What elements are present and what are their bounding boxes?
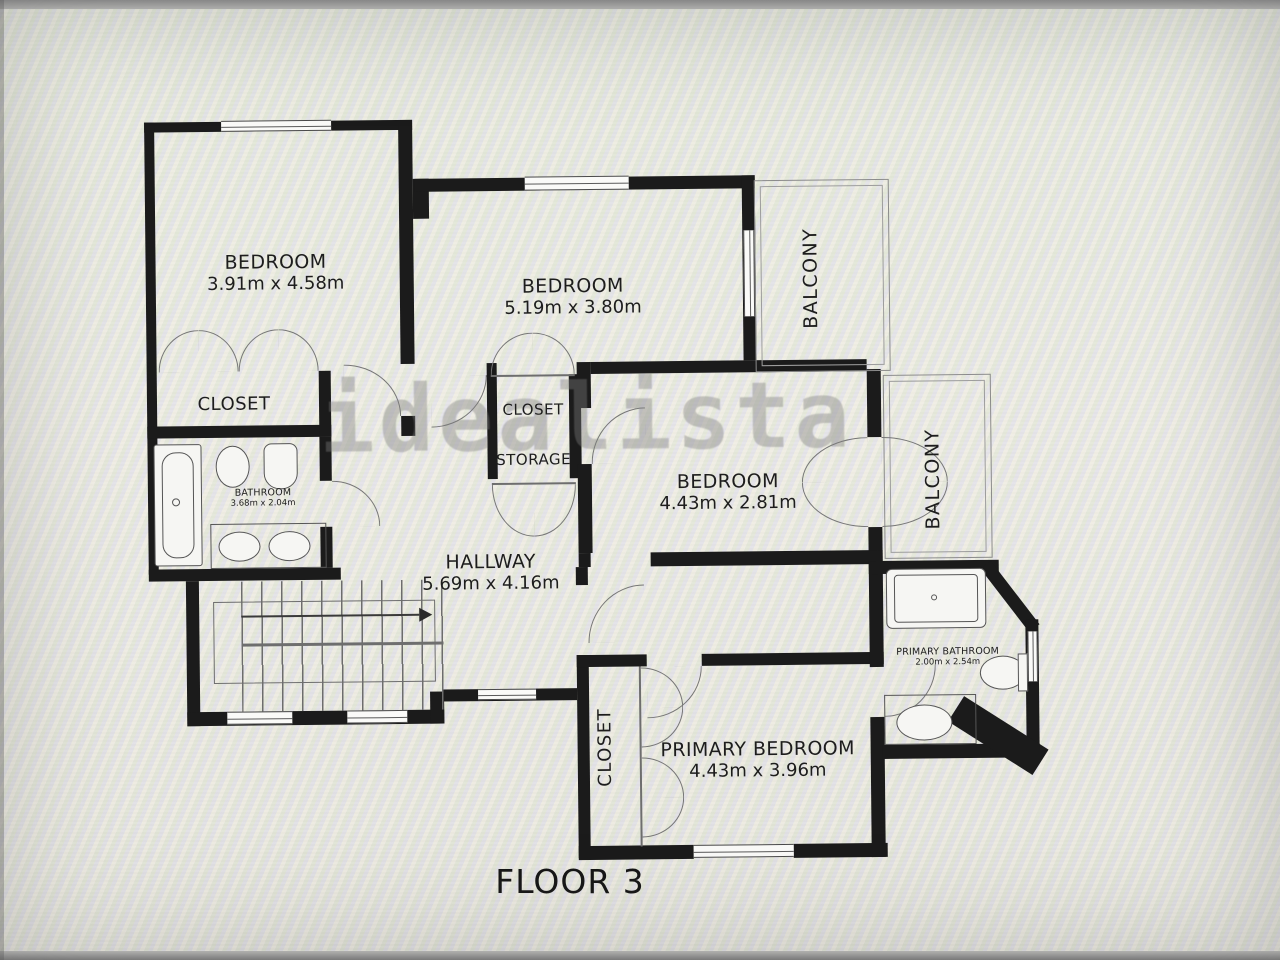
wall [398, 120, 415, 364]
door-arc [492, 485, 535, 537]
room-dims: 3.68m x 2.04m [231, 498, 296, 509]
room-dims: 2.00m x 2.54m [896, 657, 999, 668]
window [743, 230, 755, 316]
toilet-tank-icon [1018, 653, 1028, 691]
room-label-bathroom: BATHROOM 3.68m x 2.04m [230, 487, 295, 509]
room-label-bedroom-1: BEDROOM 3.91m x 4.58m [207, 251, 345, 295]
bifold-door-arc [158, 330, 198, 372]
wall [319, 437, 331, 481]
room-name: BATHROOM [230, 487, 295, 499]
french-door-arc [801, 437, 867, 483]
bifold-door-arc [532, 332, 574, 374]
window [221, 120, 331, 132]
wall [186, 581, 201, 726]
wall [577, 362, 591, 408]
closet-label: CLOSET [502, 400, 563, 419]
room-name: BEDROOM [207, 251, 345, 274]
window [347, 710, 407, 724]
screen-top-bar [0, 0, 1280, 9]
floor-plan: idealista BEDROOM 3.91m x 4.58m BEDROOM … [136, 107, 1044, 884]
balcony-label: BALCONY [799, 228, 822, 329]
room-dims: 3.91m x 4.58m [207, 273, 345, 295]
wall [401, 416, 415, 436]
door-arc [332, 480, 380, 527]
wall [579, 553, 591, 567]
door-arc [588, 584, 645, 643]
bifold-door-arc [278, 329, 318, 371]
balcony-label: BALCONY [921, 428, 944, 529]
wall [579, 845, 694, 860]
stair-direction-arrow [419, 608, 432, 622]
drain-icon [172, 498, 180, 506]
bifold-door-arc [642, 797, 684, 837]
room-name: HALLWAY [422, 550, 560, 573]
room-name: PRIMARY BEDROOM [660, 737, 855, 761]
room-label-hallway: HALLWAY 5.69m x 4.16m [422, 550, 560, 594]
wall [869, 564, 884, 667]
wall [702, 652, 884, 666]
room-label-bedroom-3: BEDROOM 4.43m x 2.81m [659, 470, 797, 514]
staircase [136, 107, 1036, 116]
storage-label: STORAGE [496, 450, 571, 469]
room-dims: 5.19m x 3.80m [504, 296, 642, 318]
primary-bathroom-fixtures [136, 107, 1036, 116]
door-arc [344, 364, 402, 417]
screen-bottom-bar [0, 951, 1280, 960]
bifold-door-arc [198, 330, 238, 372]
wall [149, 568, 341, 582]
door-arc [431, 375, 488, 428]
room-dims: 4.43m x 3.96m [661, 759, 856, 782]
wall [651, 550, 883, 566]
bathroom-fixtures [136, 107, 1036, 116]
wall [319, 371, 332, 437]
closet-label-vertical: CLOSET [594, 708, 616, 787]
screen-left-edge [0, 0, 4, 960]
room-label-bedroom-2: BEDROOM 5.19m x 3.80m [504, 274, 642, 318]
wall [577, 654, 647, 667]
window [694, 844, 794, 858]
closet-label: CLOSET [197, 393, 270, 415]
toilet-icon [215, 446, 249, 488]
wall [577, 655, 591, 858]
french-door-arc [802, 482, 868, 528]
stair-outline [213, 600, 436, 684]
wall [578, 464, 593, 553]
room-dims: 4.43m x 2.81m [659, 492, 797, 514]
screenshot-stage: idealista BEDROOM 3.91m x 4.58m BEDROOM … [0, 0, 1280, 960]
window [478, 689, 536, 701]
wall [147, 425, 331, 439]
room-name: BEDROOM [504, 274, 642, 297]
bifold-door-arc [238, 329, 278, 371]
room-dims: 5.69m x 4.16m [422, 572, 560, 594]
wall [576, 567, 588, 585]
wall [867, 369, 882, 437]
bifold-door-arc [490, 333, 532, 375]
wall [870, 717, 885, 857]
bidet-icon [263, 443, 297, 489]
room-label-primary-bedroom: PRIMARY BEDROOM 4.43m x 3.96m [660, 737, 855, 782]
door-arc [534, 484, 577, 536]
balcony-railing [754, 179, 891, 372]
room-label-primary-bathroom: PRIMARY BATHROOM 2.00m x 2.54m [896, 646, 999, 668]
room-name: BEDROOM [659, 470, 797, 493]
window [1027, 631, 1038, 681]
door-arc [591, 407, 646, 464]
drain-icon [931, 594, 937, 600]
window [227, 711, 292, 725]
room-name: PRIMARY BATHROOM [896, 646, 999, 658]
floor-caption: FLOOR 3 [495, 862, 645, 901]
window [525, 176, 629, 191]
